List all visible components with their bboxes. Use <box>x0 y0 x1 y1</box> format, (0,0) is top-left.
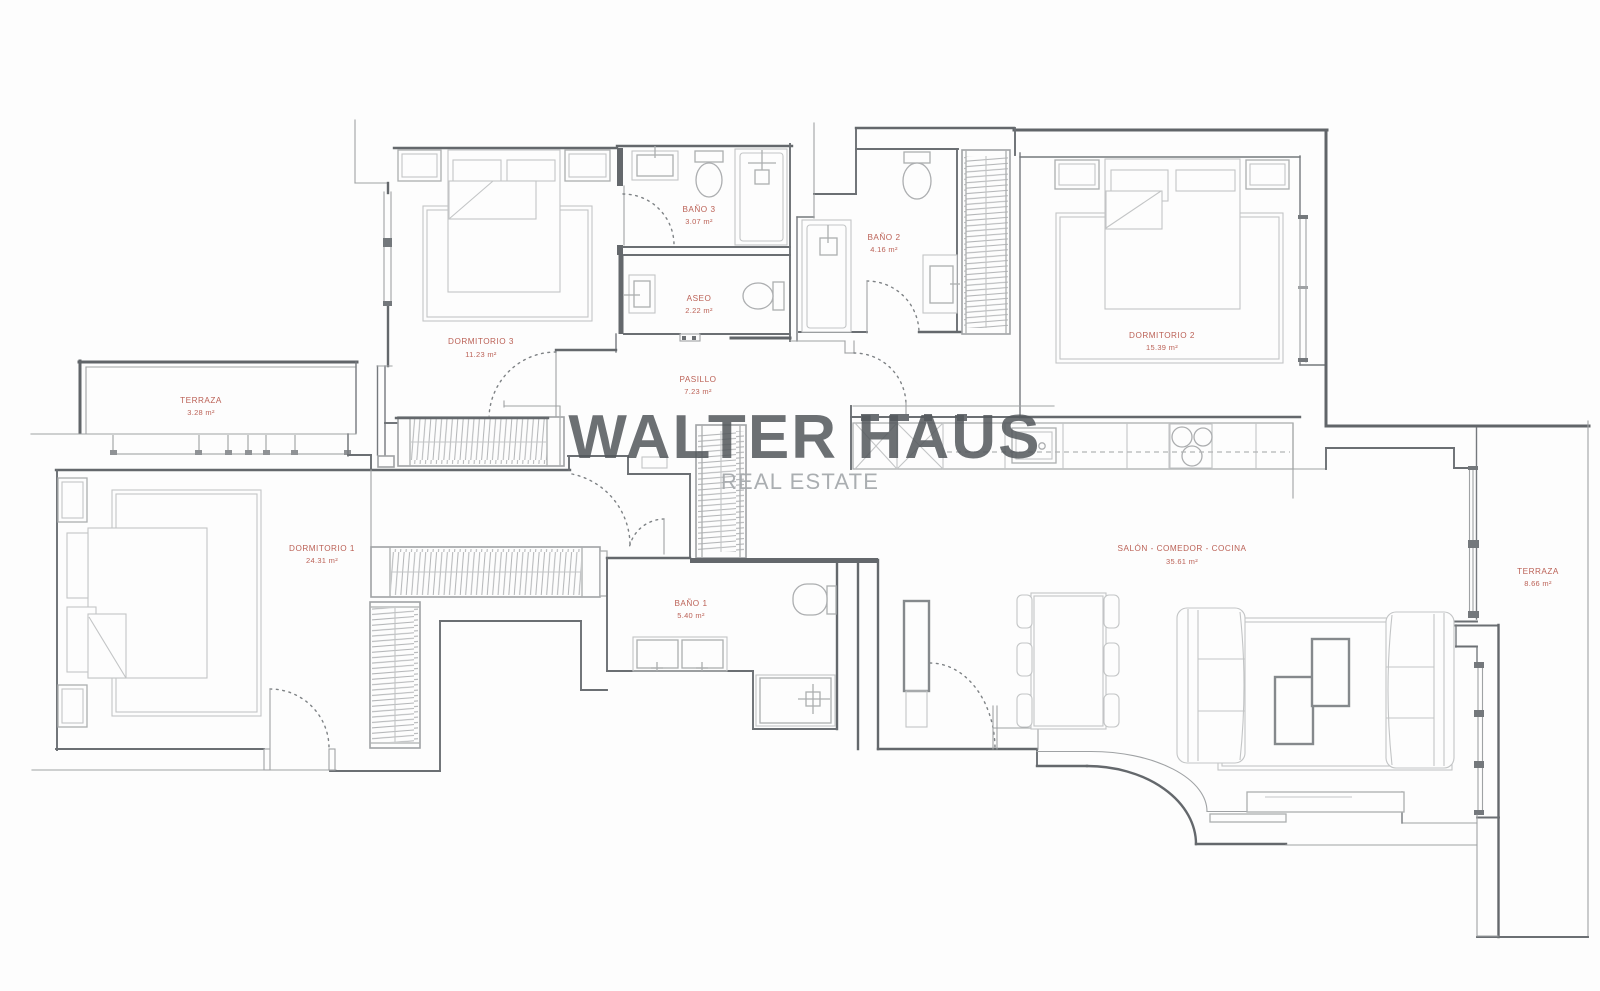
svg-text:SALÓN - COMEDOR - COCINA: SALÓN - COMEDOR - COCINA <box>1118 543 1247 553</box>
svg-text:DORMITORIO 3: DORMITORIO 3 <box>448 337 514 346</box>
svg-text:8.66 m²: 8.66 m² <box>1524 579 1552 588</box>
svg-text:3.28 m²: 3.28 m² <box>187 408 215 417</box>
svg-text:7.23 m²: 7.23 m² <box>684 387 712 396</box>
svg-text:REAL ESTATE: REAL ESTATE <box>721 469 879 494</box>
svg-text:3.07 m²: 3.07 m² <box>685 217 713 226</box>
svg-text:TERRAZA: TERRAZA <box>180 396 222 405</box>
svg-text:35.61 m²: 35.61 m² <box>1166 557 1198 566</box>
svg-text:24.31 m²: 24.31 m² <box>306 556 338 565</box>
svg-text:PASILLO: PASILLO <box>679 375 716 384</box>
svg-text:5.40 m²: 5.40 m² <box>677 611 705 620</box>
svg-text:11.23 m²: 11.23 m² <box>465 350 497 359</box>
svg-text:ASEO: ASEO <box>687 294 712 303</box>
svg-text:4.16 m²: 4.16 m² <box>870 245 898 254</box>
svg-text:2.22 m²: 2.22 m² <box>685 306 713 315</box>
svg-text:15.39 m²: 15.39 m² <box>1146 343 1178 352</box>
svg-text:WALTER HAUS: WALTER HAUS <box>568 403 1041 472</box>
svg-text:TERRAZA: TERRAZA <box>1517 567 1559 576</box>
svg-text:DORMITORIO 2: DORMITORIO 2 <box>1129 331 1195 340</box>
svg-text:BAÑO 1: BAÑO 1 <box>674 598 707 608</box>
svg-text:DORMITORIO 1: DORMITORIO 1 <box>289 544 355 553</box>
svg-text:BAÑO 3: BAÑO 3 <box>682 204 715 214</box>
svg-text:BAÑO 2: BAÑO 2 <box>867 232 900 242</box>
